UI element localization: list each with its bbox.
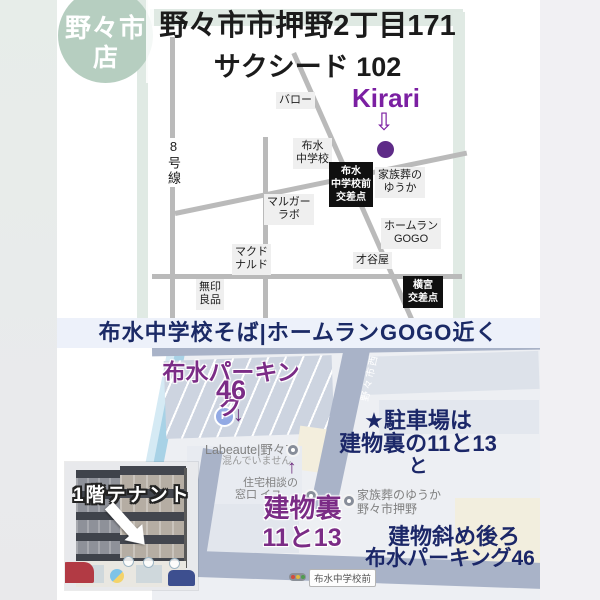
kazokuso-label-line2: 野々市押野 bbox=[357, 500, 417, 517]
landmark-fusui-jhs: 布水 中学校 bbox=[293, 138, 332, 169]
streetview-dot bbox=[169, 558, 180, 569]
intersection-fusui-front: 布水 中学校前 交差点 bbox=[329, 162, 373, 207]
decor-badge-bar bbox=[146, 0, 154, 83]
building-back-up-arrow-icon: ↑ bbox=[287, 457, 297, 479]
building-line: サクシード 102 bbox=[150, 45, 465, 84]
store-access-flyer: 野々市 店 野々市市押野2丁目171 サクシード 102 Kirari ⇩ 8号… bbox=[0, 0, 600, 600]
map-block-1 bbox=[356, 351, 539, 395]
streetview-dot bbox=[143, 557, 154, 568]
landmark-saitaniya: 才谷屋 bbox=[353, 252, 392, 269]
shop-down-arrow-icon: ⇩ bbox=[374, 108, 394, 137]
store-badge: 野々市 店 bbox=[58, 0, 153, 83]
route8-label: 8号線 bbox=[163, 138, 184, 187]
crowd-status-label: 混んでいません bbox=[222, 452, 291, 467]
building-back-numbers: 11と13 bbox=[243, 518, 361, 554]
landmark-homerun-gogo: ホームラン GOGO bbox=[381, 218, 441, 249]
landmark-mcdonalds: マクド ナルド bbox=[232, 244, 271, 275]
road-vertical-2 bbox=[263, 137, 268, 318]
address-line: 野々市市押野2丁目171 bbox=[150, 2, 465, 44]
photo-caption: 1階テナント bbox=[73, 480, 191, 507]
parking-note-line3: と bbox=[315, 451, 521, 478]
shop-location-dot bbox=[377, 141, 394, 158]
parking-number-label: 46 bbox=[155, 375, 307, 406]
location-banner: 布水中学校そば|ホームランGOGO近く bbox=[57, 318, 540, 348]
right-margin-strip bbox=[540, 0, 600, 600]
blue-car bbox=[168, 570, 195, 586]
bus-stop-label: 布水中学校前 bbox=[309, 569, 376, 587]
detail-map: 野々市西 布水パーキング 46 P ↓ Labeaute|野々市 混んでいません… bbox=[57, 348, 540, 600]
labeaute-pin bbox=[286, 443, 300, 457]
building-photo: 1階テナント bbox=[65, 462, 198, 590]
red-car bbox=[65, 562, 94, 583]
location-note-line2: 布水パーキング46 bbox=[361, 542, 539, 572]
page-title: 野々市市押野2丁目171 サクシード 102 bbox=[150, 2, 465, 84]
streetview-dot bbox=[123, 556, 134, 567]
intersection-yokomiya: 横宮 交差点 bbox=[403, 276, 443, 308]
store-badge-suffix: 店 bbox=[58, 38, 153, 74]
landmark-muji: 無印 良品 bbox=[196, 279, 224, 310]
landmark-kazokuso-yuka: 家族葬の ゆうか bbox=[375, 167, 425, 198]
parking-down-arrow-icon: ↓ bbox=[233, 403, 244, 427]
landmark-valor: バロー bbox=[276, 92, 315, 109]
left-margin-strip bbox=[0, 0, 57, 600]
landmark-margar-labo: マルガー ラボ bbox=[264, 194, 314, 225]
traffic-light-icon bbox=[289, 573, 306, 581]
storefront-logo bbox=[110, 569, 124, 583]
